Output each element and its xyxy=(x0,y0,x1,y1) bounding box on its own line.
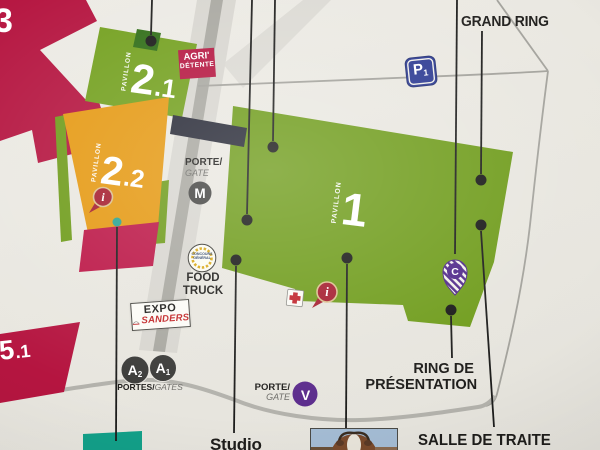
callout-dot-ring xyxy=(446,305,457,316)
grand-ring-label: GRAND RING xyxy=(461,14,549,30)
pavilion-2-1-label: PAVILLON 2 .1 xyxy=(120,51,181,102)
gate-a1-letter: A1 xyxy=(149,360,177,376)
teal-building-shape xyxy=(83,431,142,450)
pavilion-1-shape xyxy=(222,106,513,327)
callout-line-photo xyxy=(346,264,347,429)
callout-line-teal xyxy=(116,227,117,441)
boundary-line-topright xyxy=(497,0,548,71)
pavilion-2-2-label: PAVILLON 2 .2 xyxy=(90,142,149,193)
callout-dot-studio xyxy=(231,255,242,266)
c-pin-letter: C xyxy=(448,266,462,278)
callout-line-ring xyxy=(451,316,452,358)
parking-p1-label: P1 xyxy=(404,59,437,79)
callout-line xyxy=(151,0,152,35)
pavilion-3-label: 3 xyxy=(0,2,13,41)
gate-m-label: PORTE/ GATE xyxy=(185,158,222,178)
road-fork xyxy=(223,0,331,88)
first-aid-icon xyxy=(286,289,304,307)
gate-m-letter: M xyxy=(189,186,211,201)
callout-line-studio xyxy=(234,266,236,433)
salle-de-traite-label: SALLE DE TRAITE xyxy=(418,432,551,450)
callout-line-grand-ring xyxy=(481,31,482,174)
sanders-logo-icon xyxy=(132,317,140,326)
callout-dot-photo xyxy=(342,253,353,264)
food-truck-label: FOOD TRUCK xyxy=(180,272,226,297)
callout-dot xyxy=(242,215,253,226)
portes-gates-label: PORTES/GATES xyxy=(112,382,188,392)
cow-photo xyxy=(310,428,398,450)
event-site-map: 3 5 .1 PAVILLON 2 .1 AGRI' DÉTENTE PAVIL… xyxy=(0,0,600,450)
info-pin-letter-1: i xyxy=(321,285,333,300)
info-pin-letter-2: i xyxy=(97,190,109,205)
expo-sanders-box: EXPO SANDERS xyxy=(130,299,191,331)
crimson-block-shape xyxy=(79,222,159,272)
pavilion-1-label: PAVILLON 1 xyxy=(330,181,370,231)
pavilion-5-1-label: 5 .1 xyxy=(0,337,31,363)
gate-a2-letter: A2 xyxy=(121,362,149,378)
callout-dot xyxy=(146,36,157,47)
map-shapes-layer xyxy=(0,0,600,450)
concours-logo-text: CONCOURS GÉNÉRAL xyxy=(188,253,216,261)
ring-presentation-label: RING DE PRÉSENTATION xyxy=(362,361,474,393)
callout-dot-teal xyxy=(113,218,122,227)
callout-dot-salle xyxy=(476,220,487,231)
studio-label: Studio xyxy=(210,435,262,450)
cow-illustration xyxy=(311,429,397,450)
agri-detente-badge: AGRI' DÉTENTE xyxy=(178,48,216,79)
gate-v-label: PORTE/ GATE xyxy=(252,383,290,402)
gate-v-letter: V xyxy=(293,387,318,403)
callout-dot xyxy=(268,142,279,153)
callout-dot-grand-ring xyxy=(476,175,487,186)
